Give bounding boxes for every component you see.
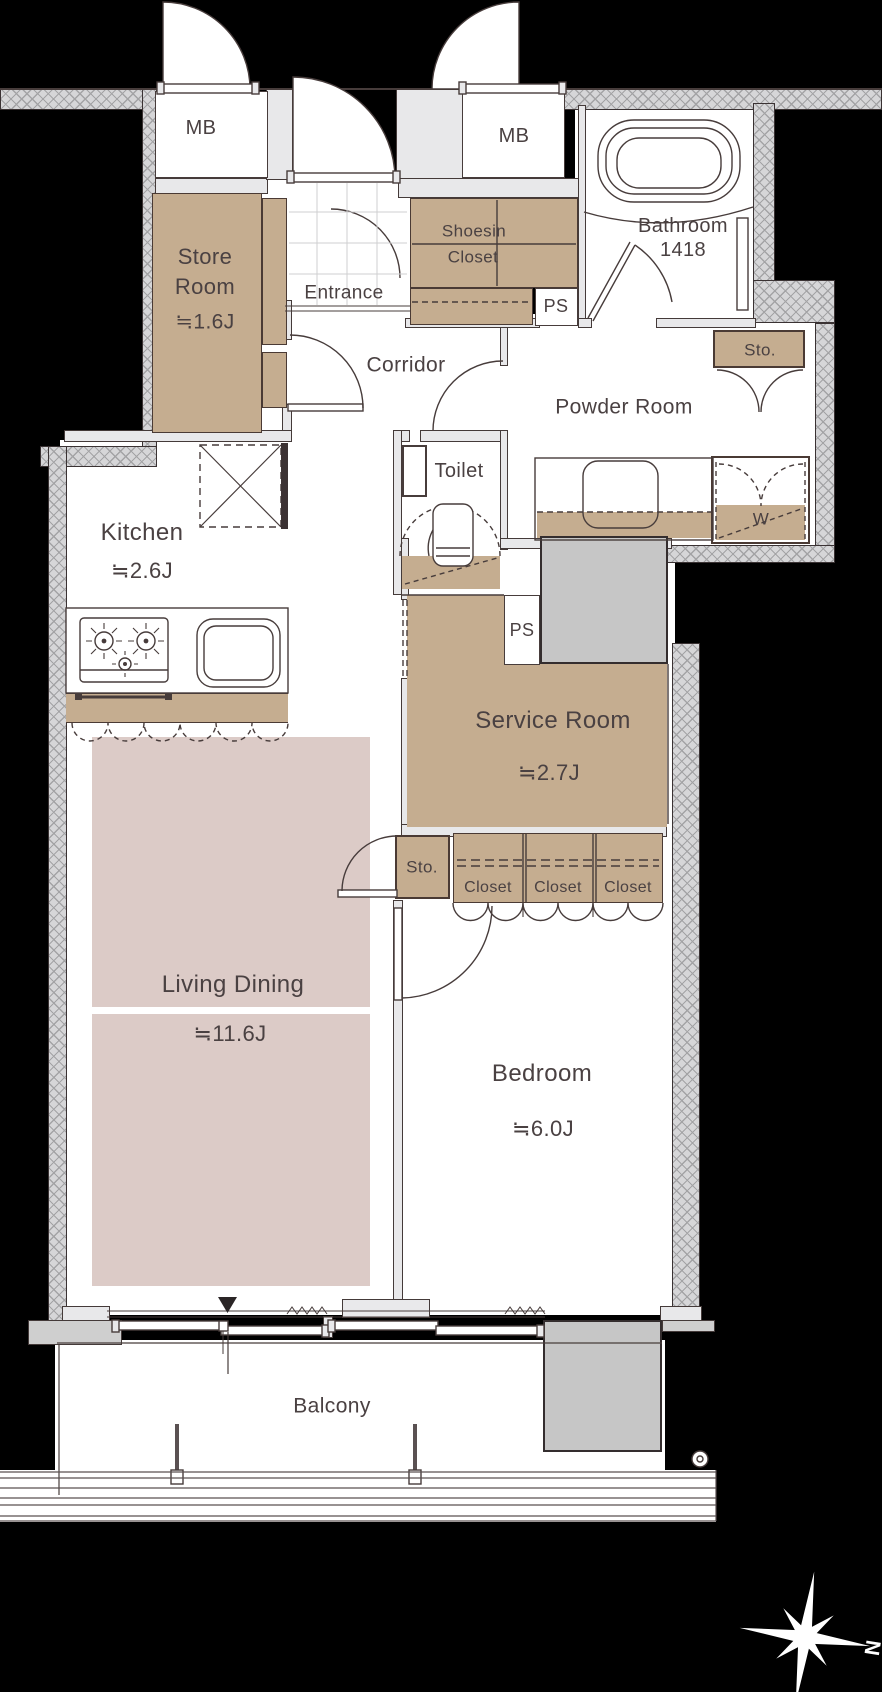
living-dining-size-label: ≒11.6J bbox=[193, 1023, 266, 1045]
bedroom-size-label: ≒6.0J bbox=[512, 1118, 574, 1140]
service-room-size-label: ≒2.7J bbox=[518, 762, 580, 784]
shoesin-closet-fill bbox=[410, 198, 578, 288]
wall-mb1-bottom bbox=[155, 178, 268, 194]
kitchen-label: Kitchen bbox=[101, 521, 184, 545]
living-dining-rug-lower bbox=[92, 1014, 370, 1286]
meter-box-1-label: MB bbox=[186, 118, 217, 138]
bedroom-label: Bedroom bbox=[492, 1062, 592, 1086]
shaft-block-upper bbox=[540, 536, 668, 664]
service-room-fill-a bbox=[407, 595, 506, 665]
shoesin-closet-label-line1: Shoesin bbox=[442, 223, 506, 240]
wall-toilet-east bbox=[500, 430, 508, 550]
wall-top-right bbox=[563, 88, 882, 110]
balcony-step bbox=[342, 1299, 430, 1318]
pipe-space-lower-label: PS bbox=[510, 621, 535, 639]
service-room-fill-b bbox=[407, 663, 667, 827]
wall-powder-bottom bbox=[667, 545, 835, 563]
balcony-label: Balcony bbox=[293, 1396, 371, 1417]
wall-entrance-right-pillar bbox=[396, 88, 463, 180]
wall-bedroom-right bbox=[672, 643, 700, 1325]
toilet-label: Toilet bbox=[434, 461, 483, 481]
floor-balcony-railing-band bbox=[0, 1470, 716, 1522]
wall-toilet-top bbox=[420, 430, 508, 442]
wall-bedroom-west bbox=[393, 900, 403, 1312]
pipe-space-upper-label: PS bbox=[544, 297, 569, 315]
meter-box-2-label: MB bbox=[499, 126, 530, 146]
compass-north-icon bbox=[730, 1562, 879, 1692]
wall-entrance-left-pillar bbox=[266, 88, 293, 180]
powder-room-label: Powder Room bbox=[555, 397, 692, 418]
closet-1-label: Closet bbox=[464, 880, 512, 896]
wall-window-mullion bbox=[323, 1316, 333, 1338]
kitchen-size-label: ≒2.6J bbox=[111, 560, 173, 582]
corridor-label: Corridor bbox=[366, 355, 445, 376]
wall-bathroom-bottom-left bbox=[578, 318, 592, 328]
shaft-block-balcony bbox=[543, 1320, 662, 1452]
closet-2-label: Closet bbox=[534, 880, 582, 896]
bathroom-label: Bathroom bbox=[638, 216, 728, 236]
entrance-label: Entrance bbox=[304, 284, 383, 303]
toilet-floor-strip bbox=[402, 556, 500, 589]
store-room-label-line2: Room bbox=[175, 276, 235, 298]
shoesin-clos​et-label-line2: Closet bbox=[448, 249, 499, 266]
wall-bathroom-bottom-right bbox=[656, 318, 756, 328]
wall-left-outer bbox=[48, 446, 67, 1327]
store-room-size-label: ≒1.6J bbox=[175, 312, 234, 333]
service-room-label: Service Room bbox=[475, 709, 631, 733]
shoesin-closet-lower bbox=[410, 288, 533, 325]
closet-3-label: Closet bbox=[604, 880, 652, 896]
floor-kitchen-upper bbox=[155, 440, 397, 470]
storage-powder-label: Sto. bbox=[744, 342, 776, 359]
floor-plan-canvas: MB MB Bathroom 1418 Store Room ≒1.6J Sho… bbox=[0, 0, 882, 1692]
washing-machine-label: W bbox=[753, 511, 769, 528]
compass-north-label: N bbox=[860, 1639, 882, 1658]
wall-powder-right bbox=[815, 323, 835, 563]
living-dining-rug-upper bbox=[92, 737, 370, 1007]
kitchen-counter-front bbox=[66, 693, 288, 723]
entrance-cabinet-upper bbox=[262, 198, 287, 345]
wall-shoesin-top bbox=[398, 178, 580, 198]
storage-hall-label: Sto. bbox=[406, 859, 438, 876]
bathroom-size-label: 1418 bbox=[660, 240, 706, 260]
entrance-cabinet-lower bbox=[262, 352, 287, 408]
wall-bathroom-right bbox=[753, 103, 775, 283]
balcony-wall-left bbox=[28, 1320, 122, 1345]
balcony-wall-band-right bbox=[662, 1320, 715, 1332]
wall-powder-top-right bbox=[753, 280, 835, 323]
wall-bathroom-west bbox=[578, 105, 586, 327]
store-room-label-line1: Store bbox=[178, 246, 233, 268]
living-dining-label: Living Dining bbox=[162, 973, 305, 997]
vanity-floor-strip bbox=[537, 512, 711, 538]
wall-top-left bbox=[0, 88, 143, 110]
